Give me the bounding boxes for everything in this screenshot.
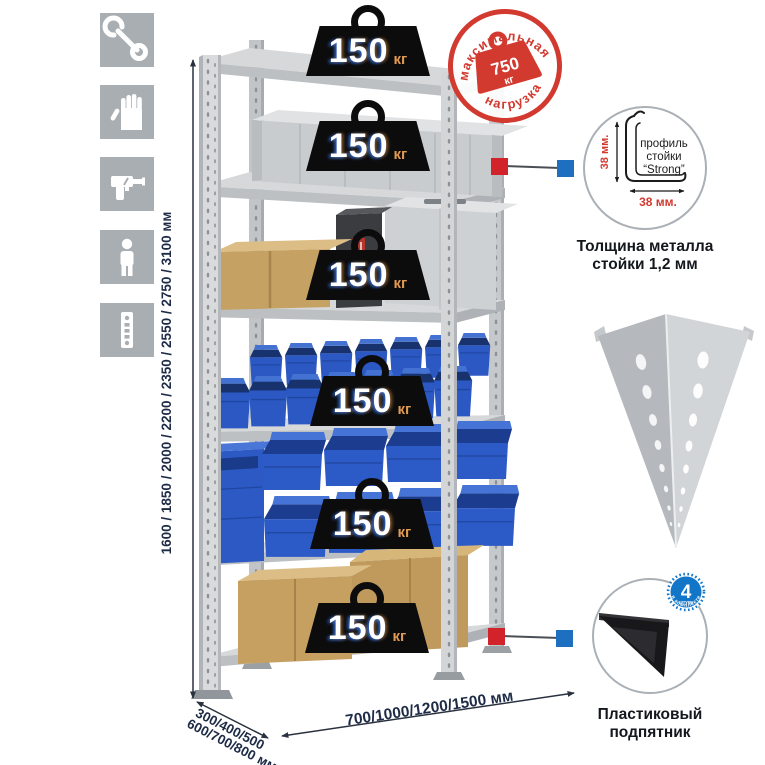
rack-post-icon [101, 304, 153, 356]
load-value: 150 [329, 129, 389, 163]
gloves-icon [101, 86, 153, 138]
profile-dim-horizontal: 38 мм. [639, 195, 677, 209]
feature-tile-drill [100, 157, 154, 211]
foot-callout: 4 штуки в комплекте [593, 573, 707, 693]
shelf-load-badge-5: 150 кг [310, 478, 434, 549]
weight-body: 150 кг [306, 121, 430, 171]
weight-body: 150 кг [305, 603, 429, 653]
feature-tile-gloves [100, 85, 154, 139]
red-marker-top [491, 158, 508, 175]
drill-icon [101, 158, 153, 210]
load-unit: кг [397, 525, 411, 540]
red-marker-bottom [488, 628, 505, 645]
load-value: 150 [329, 258, 389, 292]
weight-body: 150 кг [306, 250, 430, 300]
callout-connector-bottom [488, 628, 573, 647]
depth-dimension: 300/400/500 600/700/800 мм [185, 702, 280, 765]
weight-body: 150 кг [306, 26, 430, 76]
shelf-load-badge-4: 150 кг [310, 355, 434, 426]
blue-marker-top [557, 160, 574, 177]
load-unit: кг [393, 147, 407, 162]
load-unit: кг [393, 52, 407, 67]
load-unit: кг [397, 402, 411, 417]
width-dimension-label: 700/1000/1200/1500 мм [344, 688, 514, 730]
profile-label-2: стойки [646, 151, 681, 163]
feature-tile-person [100, 230, 154, 284]
shelf-load-badge-3: 150 кг [306, 229, 430, 300]
angle-post-image [594, 314, 754, 548]
load-unit: кг [392, 629, 406, 644]
count-badge: 4 штуки в комплекте [667, 573, 705, 611]
load-value: 150 [329, 34, 389, 68]
height-dimension-label: 1600 / 1850 / 2000 / 2200 / 2350 / 2550 … [159, 212, 174, 555]
max-load-stamp: максимальная нагрузка 750 кг [438, 0, 573, 133]
wrench-icon [101, 14, 153, 66]
foot-caption-line1: Пластиковый [598, 706, 703, 723]
feature-tile-assembly [100, 13, 154, 67]
shelf-load-badge-2: 150 кг [306, 100, 430, 171]
profile-label-3: “Strong” [643, 164, 685, 176]
load-value: 150 [333, 384, 393, 418]
weight-body: 150 кг [310, 499, 434, 549]
profile-callout: 38 мм. 38 мм. профиль стойки “Strong” [584, 107, 706, 229]
shelf-load-badge-6: 150 кг [305, 582, 429, 653]
height-dimension: 1600 / 1850 / 2000 / 2200 / 2350 / 2550 … [159, 60, 193, 698]
shelving-infographic: 1600 / 1850 / 2000 / 2200 / 2350 / 2550 … [0, 0, 765, 765]
load-value: 150 [333, 507, 393, 541]
blue-marker-bottom [556, 630, 573, 647]
profile-dim-vertical: 38 мм. [599, 135, 611, 170]
load-value: 150 [328, 611, 388, 645]
shelf-load-badge-1: 150 кг [306, 5, 430, 76]
foot-caption-line2: подпятник [609, 724, 690, 741]
profile-caption-line2: стойки 1,2 мм [592, 256, 697, 273]
feature-tile-post [100, 303, 154, 357]
width-dimension: 700/1000/1200/1500 мм [282, 688, 574, 736]
profile-label-1: профиль [640, 138, 688, 150]
weight-body: 150 кг [310, 376, 434, 426]
person-icon [101, 231, 153, 283]
profile-caption-line1: Толщина металла [577, 238, 714, 255]
load-unit: кг [393, 276, 407, 291]
callout-connector-top [491, 158, 574, 177]
